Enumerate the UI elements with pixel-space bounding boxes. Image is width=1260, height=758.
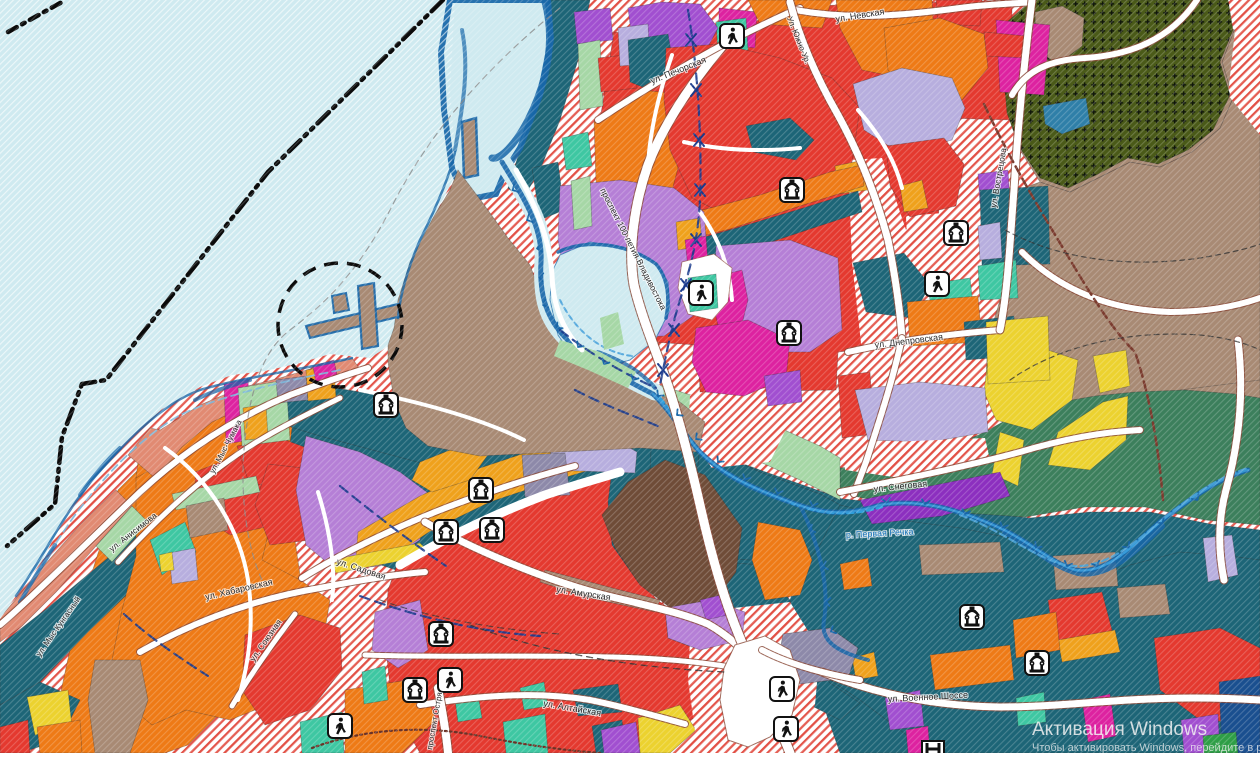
svg-text:Активация Windows: Активация Windows (1032, 719, 1207, 740)
svg-text:Чтобы активировать Windows, пе: Чтобы активировать Windows, перейдите в … (1032, 742, 1260, 753)
